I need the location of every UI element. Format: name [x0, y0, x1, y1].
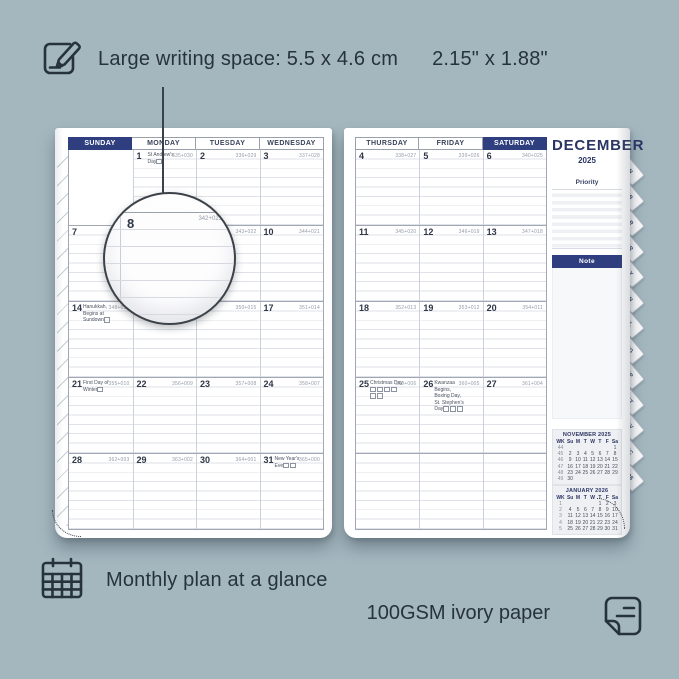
week-row: 21First Day of Winter355+01022356+009233…: [69, 378, 323, 454]
day-header-friday: FRIDAY: [419, 137, 483, 150]
monthly-plan-text: Monthly plan at a glance: [106, 569, 328, 592]
week-row: 25Christmas Day359+00626Kwanzaa Begins, …: [356, 378, 546, 454]
note-area: [552, 268, 622, 419]
pencil-note-icon: [38, 34, 84, 85]
year-label: 2025: [552, 156, 622, 165]
day-cell-26: 26Kwanzaa Begins, Boxing Day, St. Stephe…: [419, 378, 482, 453]
day-cell-21: 21First Day of Winter355+010: [69, 378, 133, 453]
day-cell-10: 10344+021: [260, 226, 324, 301]
planner-right-page: THURSDAYFRIDAYSATURDAY 4338+0275339+0266…: [344, 128, 630, 538]
week-row: [356, 454, 546, 529]
note-banner: Note: [552, 255, 622, 268]
priority-label: Priority: [552, 179, 622, 186]
week-row: 28362+00329363+00230364+00131New Year's …: [69, 454, 323, 529]
day-cell-22: 22356+009: [133, 378, 197, 453]
week-row: 4338+0275339+0266340+025: [356, 150, 546, 226]
day-header-monday: MONDAY: [132, 137, 196, 150]
day-cell-empty: [483, 454, 546, 529]
day-cell-31: 31New Year's Eve365+000: [260, 454, 324, 529]
calendar-grid-icon: [38, 554, 86, 607]
mini-calendar-november: NOVEMBER 2025WKSuMTWTFSa4414523456784691…: [552, 429, 622, 485]
left-day-headers: SUNDAYMONDAYTUESDAYWEDNESDAY: [68, 137, 324, 150]
day-cell-3: 3337+028: [260, 150, 324, 225]
day-cell-23: 23357+008: [196, 378, 260, 453]
magnifier-day-code: 342+023: [198, 216, 222, 222]
day-header-thursday: THURSDAY: [355, 137, 419, 150]
right-day-headers: THURSDAYFRIDAYSATURDAY: [355, 137, 547, 150]
day-cell-18: 18352+013: [356, 302, 419, 377]
magnifier-pointer-line: [162, 87, 164, 193]
day-header-tuesday: TUESDAY: [196, 137, 260, 150]
product-image: JANFEBMARAPRMAYJUNJULAUGSEPOCTNOVDEC2026…: [0, 0, 679, 679]
right-month-grid: 4338+0275339+0266340+02511345+02012346+0…: [355, 150, 547, 530]
week-row: 18352+01319353+01220354+011: [356, 302, 546, 378]
priority-lines: [552, 189, 622, 249]
paper-sheet-icon: [596, 592, 648, 649]
day-header-sunday: SUNDAY: [68, 137, 132, 150]
hatch-margin: [57, 150, 68, 526]
writing-space-inches-text: 2.15" x 1.88": [432, 48, 548, 71]
planner-left-page: SUNDAYMONDAYTUESDAYWEDNESDAY 1St Andrew'…: [55, 128, 332, 538]
magnifier-ruled-lines: [105, 213, 234, 319]
writing-space-annotation: Large writing space: 5.5 x 4.6 cm 2.15" …: [38, 34, 548, 85]
day-cell-19: 19353+012: [419, 302, 482, 377]
day-header-wednesday: WEDNESDAY: [260, 137, 324, 150]
day-cell-4: 4338+027: [356, 150, 419, 225]
planner-sidebar: DECEMBER 2025 Priority Note NOVEMBER 202…: [552, 137, 622, 531]
day-cell-27: 27361+004: [483, 378, 546, 453]
day-header-saturday: SATURDAY: [483, 137, 547, 150]
day-cell-12: 12346+019: [419, 226, 482, 301]
writing-space-text: Large writing space: 5.5 x 4.6 cm: [98, 48, 398, 71]
day-cell-25: 25Christmas Day359+006: [356, 378, 419, 453]
day-cell-29: 29363+002: [133, 454, 197, 529]
day-cell-13: 13347+018: [483, 226, 546, 301]
mini-calendar-title: JANUARY 2026: [555, 488, 619, 494]
mini-calendar-title: NOVEMBER 2025: [555, 432, 619, 438]
magnifier-day-number: 8: [127, 216, 134, 231]
day-cell-11: 11345+020: [356, 226, 419, 301]
monthly-plan-annotation: Monthly plan at a glance: [38, 554, 328, 607]
day-cell-empty: [356, 454, 419, 529]
day-cell-empty: [419, 454, 482, 529]
paper-text: 100GSM ivory paper: [300, 602, 550, 625]
month-title: DECEMBER: [552, 137, 622, 154]
day-cell-30: 30364+001: [196, 454, 260, 529]
magnifier-circle: 8 342+023: [103, 192, 236, 325]
day-cell-17: 17351+014: [260, 302, 324, 377]
day-cell-20: 20354+011: [483, 302, 546, 377]
week-row: 11345+02012346+01913347+018: [356, 226, 546, 302]
day-cell-24: 24358+007: [260, 378, 324, 453]
day-cell-5: 5339+026: [419, 150, 482, 225]
day-cell-6: 6340+025: [483, 150, 546, 225]
